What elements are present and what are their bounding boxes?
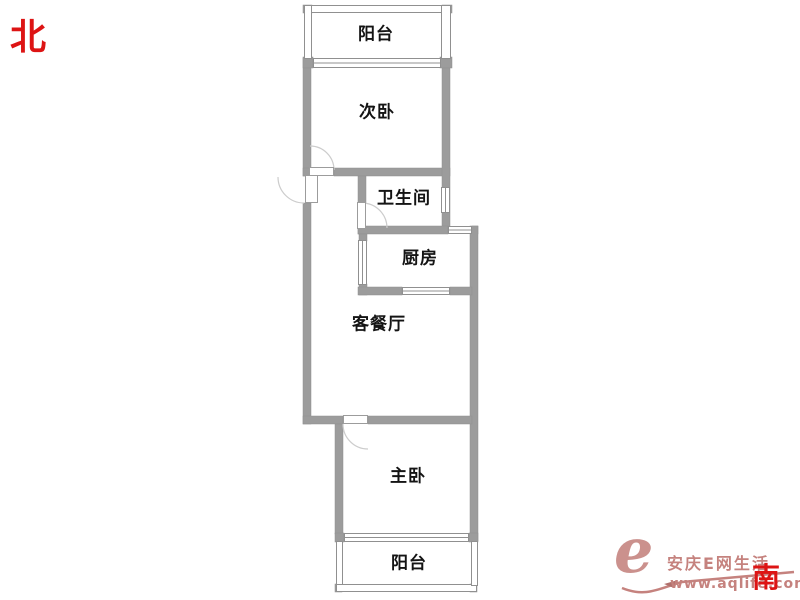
doors xyxy=(278,146,387,449)
balcony-bottom-right-wall xyxy=(472,542,478,586)
post-balcony-bottom-nw xyxy=(335,533,344,542)
master-door-arc xyxy=(343,424,368,449)
kitchen-label: 厨房 xyxy=(402,244,438,269)
wall-kitchen-bottom-left xyxy=(358,287,402,295)
bedroom2-door xyxy=(310,168,334,176)
wall-right-exterior-lower xyxy=(470,226,478,541)
wall-living-bottom-right xyxy=(368,416,472,424)
balcony-bottom-outer-wall xyxy=(337,585,477,592)
master-bedroom-label: 主卧 xyxy=(390,462,426,487)
watermark-logo-e: e xyxy=(614,520,653,582)
compass-south-label: 南 xyxy=(752,556,780,596)
balcony-top-right-wall xyxy=(442,6,451,59)
bathroom-label: 卫生间 xyxy=(377,184,431,209)
wall-kitchen-bottom-right xyxy=(450,287,472,295)
wall-master-left xyxy=(335,424,343,534)
wall-bathroom-left-upper xyxy=(358,176,366,203)
bedroom2-door-arc xyxy=(310,146,334,170)
floorplan-page: 阳台 次卧 卫生间 厨房 客餐厅 主卧 阳台 北 南 e 安庆E网生活 www.… xyxy=(0,0,800,600)
post-balcony-bottom-ne xyxy=(469,533,478,542)
compass-north-label: 北 xyxy=(10,8,46,60)
walls xyxy=(303,5,478,592)
wall-living-bottom-left xyxy=(303,416,343,424)
entry-door-arc xyxy=(278,177,304,203)
wall-left-exterior-lower xyxy=(303,203,311,424)
wall-left-exterior-upper xyxy=(303,58,311,176)
wall-bathroom-bottom xyxy=(358,226,448,234)
living-dining-label: 客餐厅 xyxy=(352,310,406,335)
balcony-bottom-left-wall xyxy=(337,542,343,586)
balcony-bottom-label: 阳台 xyxy=(391,549,427,574)
balcony-top-outer-wall xyxy=(305,6,451,13)
wall-kitchen-left-upper-stub xyxy=(359,234,367,241)
wall-bedroom2-bottom xyxy=(334,168,450,176)
floorplan-drawing xyxy=(0,0,800,600)
balcony-thin-walls xyxy=(305,6,478,592)
wall-bedroom2-bottom-left-stub xyxy=(303,168,310,176)
secondary-bedroom-label: 次卧 xyxy=(359,98,395,123)
watermark-url: www.aqlife.com xyxy=(670,576,800,592)
balcony-top-left-wall xyxy=(305,6,312,59)
entry-door xyxy=(306,176,318,203)
balcony-top-label: 阳台 xyxy=(358,20,394,45)
bathroom-door xyxy=(358,203,366,229)
master-door xyxy=(344,416,368,424)
